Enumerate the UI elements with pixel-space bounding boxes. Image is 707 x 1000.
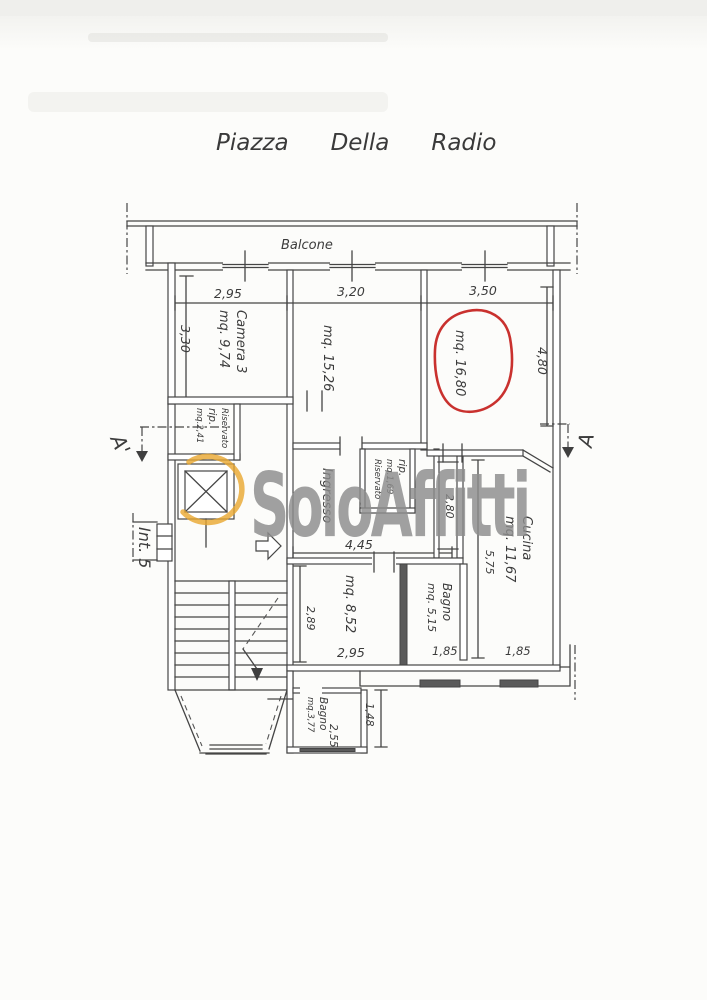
section-arrow-left-icon xyxy=(136,451,148,462)
dim-room3-depth: 4,80 xyxy=(535,347,550,375)
label-bagno1-area: mq. 5,15 xyxy=(425,583,438,632)
window-2 xyxy=(330,251,375,281)
wall-852-bagno xyxy=(400,564,407,665)
label-camera3-name: Camera 3 xyxy=(233,310,248,373)
dim-top-left: 2,95 xyxy=(214,286,242,301)
red-highlight-circle xyxy=(435,310,512,412)
dim-camera3-depth: 3,30 xyxy=(178,325,193,353)
dim-bagno2-width: 2,55 xyxy=(327,724,339,748)
label-room3-area: mq. 16,80 xyxy=(452,330,467,396)
room-8-52: mq. 8,52 2,89 2,95 xyxy=(294,566,365,662)
camera3-bottom-wall xyxy=(168,397,293,404)
window-3 xyxy=(462,251,507,281)
label-riservato-top-1: Riservato xyxy=(219,408,229,448)
unit-label: Int. 5 xyxy=(135,527,154,568)
label-room852-area: mq. 8,52 xyxy=(342,575,357,633)
label-bagno2-area: mq.3,77 xyxy=(305,697,315,733)
stair-direction-arrow-icon xyxy=(251,668,263,681)
window-1 xyxy=(223,251,268,281)
balcony-label: Balcone xyxy=(281,238,333,253)
dim-room852-width: 2,95 xyxy=(337,645,365,660)
label-riservato-top-2: rip. xyxy=(206,408,218,425)
section-label-a-prime: A' xyxy=(105,429,136,458)
dim-cucina-width: 1,85 xyxy=(505,644,531,658)
section-label-a: A xyxy=(573,431,599,451)
room-15-26: mq. 15,26 xyxy=(293,325,427,455)
wall-bagno-cucina xyxy=(460,564,467,660)
watermark-logo: SoloAffitti xyxy=(250,462,528,550)
room-bagno2: Bagno mq.3,77 2,55 1,48 xyxy=(268,671,387,753)
dim-bagno2-depth: 1,48 xyxy=(363,703,375,727)
dim-room852-depth: 2,89 xyxy=(304,606,317,631)
label-room2-area: mq. 15,26 xyxy=(320,325,335,391)
section-marker-a: A xyxy=(540,424,599,458)
dim-bagno1-width: 1,85 xyxy=(432,644,458,658)
scanned-floor-plan-page: { "title": { "words": ["Piazza", "Della"… xyxy=(0,0,707,1000)
room-camera3: 3,30 Camera 3 mq. 9,74 xyxy=(168,276,322,411)
dim-top-right: 3,50 xyxy=(469,283,497,298)
room-riservato-top: Riservato rip. mq.2,41 xyxy=(168,404,240,460)
label-riservato-top-3: mq.2,41 xyxy=(194,408,204,443)
section-arrow-right-icon xyxy=(562,447,574,458)
room-16-80: mq. 16,80 4,80 xyxy=(435,287,553,426)
top-dimension-line: 2,95 3,20 3,50 xyxy=(175,283,553,310)
top-facade-wall xyxy=(146,251,570,281)
dim-top-mid: 3,20 xyxy=(337,284,365,299)
elevator xyxy=(178,456,242,547)
label-camera3-area: mq. 9,74 xyxy=(216,310,231,368)
label-bagno1-name: Bagno xyxy=(440,583,454,621)
